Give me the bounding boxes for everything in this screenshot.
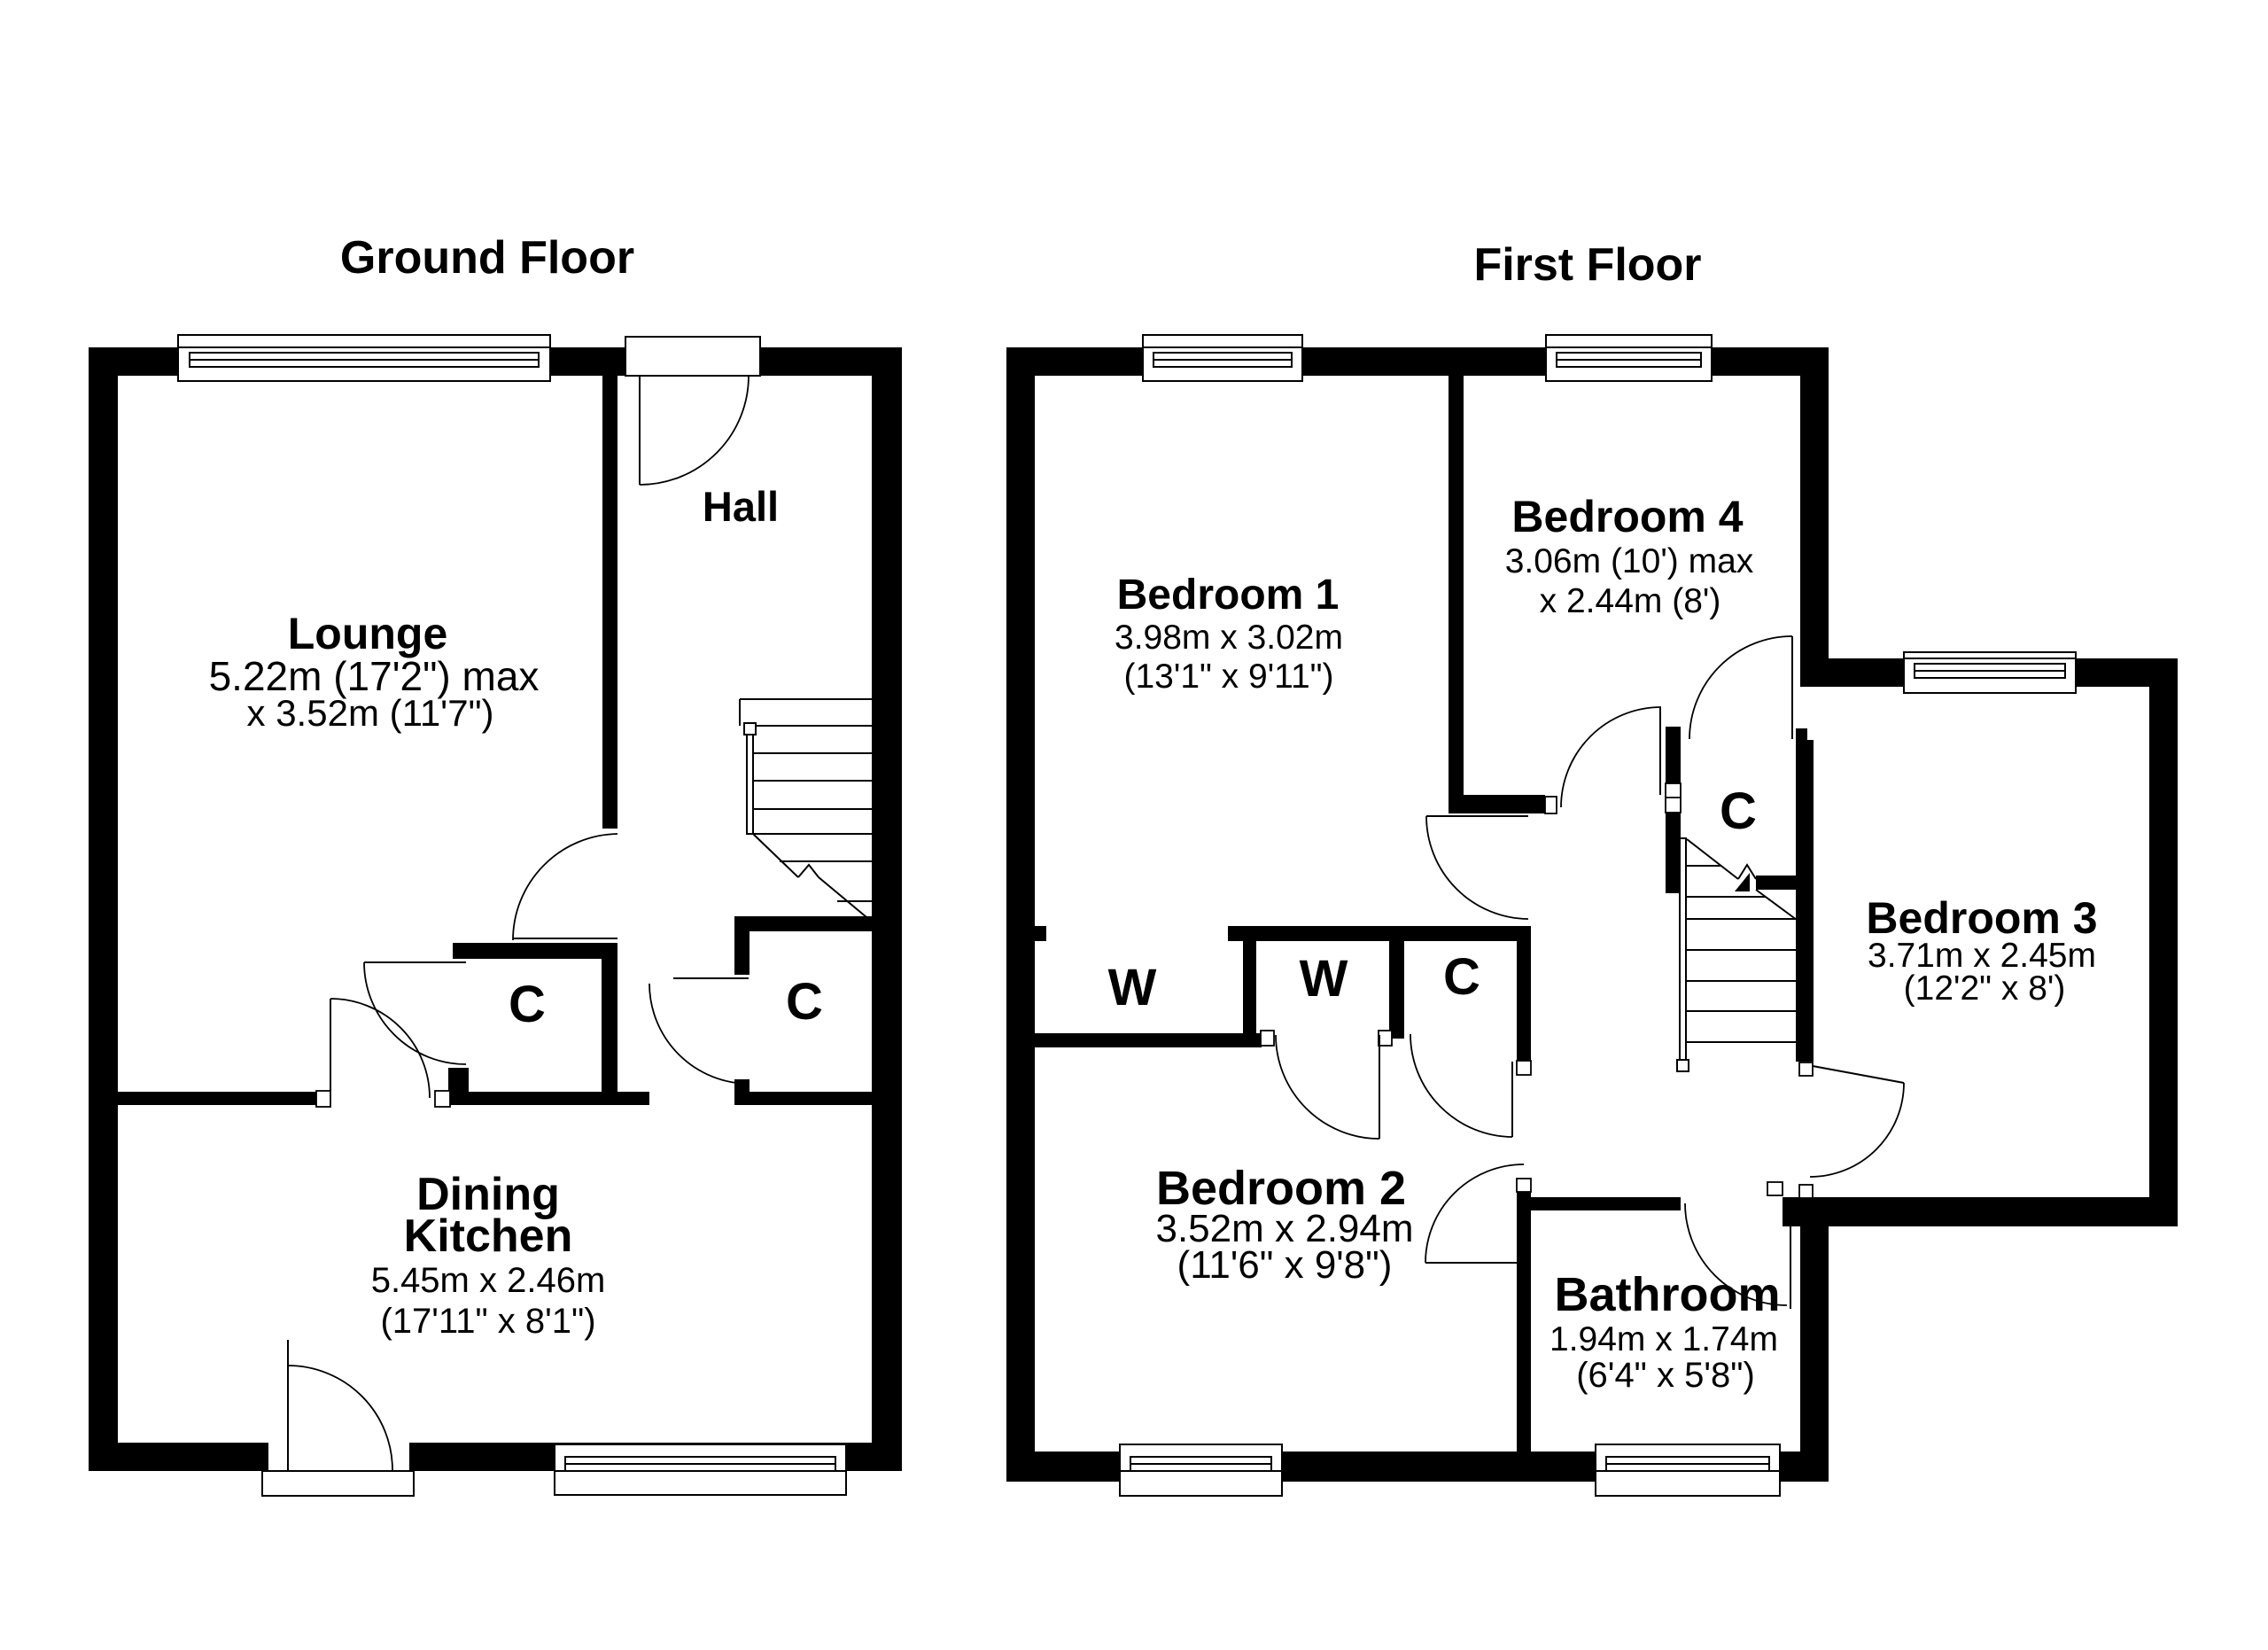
svg-text:Lounge: Lounge xyxy=(288,609,448,658)
svg-text:x 2.44m (8'): x 2.44m (8') xyxy=(1540,582,1721,620)
svg-text:(17'11" x 8'1"): (17'11" x 8'1") xyxy=(380,1302,595,1341)
svg-text:First Floor: First Floor xyxy=(1473,239,1701,291)
svg-text:W: W xyxy=(1300,950,1348,1008)
svg-text:(6'4" x 5'8"): (6'4" x 5'8") xyxy=(1576,1356,1755,1395)
svg-text:1.94m x 1.74m: 1.94m x 1.74m xyxy=(1550,1320,1778,1358)
svg-text:3.98m x 3.02m: 3.98m x 3.02m xyxy=(1115,619,1343,657)
svg-text:Hall: Hall xyxy=(703,483,779,530)
svg-text:(11'6" x 9'8"): (11'6" x 9'8") xyxy=(1177,1243,1393,1287)
svg-text:(12'2" x 8'): (12'2" x 8') xyxy=(1904,969,2066,1008)
svg-text:Ground Floor: Ground Floor xyxy=(340,232,634,284)
svg-text:3.06m (10') max: 3.06m (10') max xyxy=(1505,542,1754,580)
svg-text:C: C xyxy=(1443,948,1480,1006)
svg-text:(13'1" x 9'11"): (13'1" x 9'11") xyxy=(1124,658,1334,696)
svg-text:Bedroom 3: Bedroom 3 xyxy=(1866,893,2097,943)
svg-text:Bathroom: Bathroom xyxy=(1555,1268,1781,1321)
svg-text:C: C xyxy=(786,973,823,1031)
svg-text:W: W xyxy=(1108,959,1157,1016)
svg-text:Kitchen: Kitchen xyxy=(404,1210,573,1262)
svg-text:5.45m x 2.46m: 5.45m x 2.46m xyxy=(371,1261,606,1300)
svg-text:x 3.52m (11'7"): x 3.52m (11'7") xyxy=(247,692,494,734)
svg-text:C: C xyxy=(1720,782,1757,840)
svg-text:Bedroom 1: Bedroom 1 xyxy=(1117,572,1340,619)
svg-text:Bedroom 4: Bedroom 4 xyxy=(1511,492,1743,541)
svg-text:C: C xyxy=(509,976,546,1033)
